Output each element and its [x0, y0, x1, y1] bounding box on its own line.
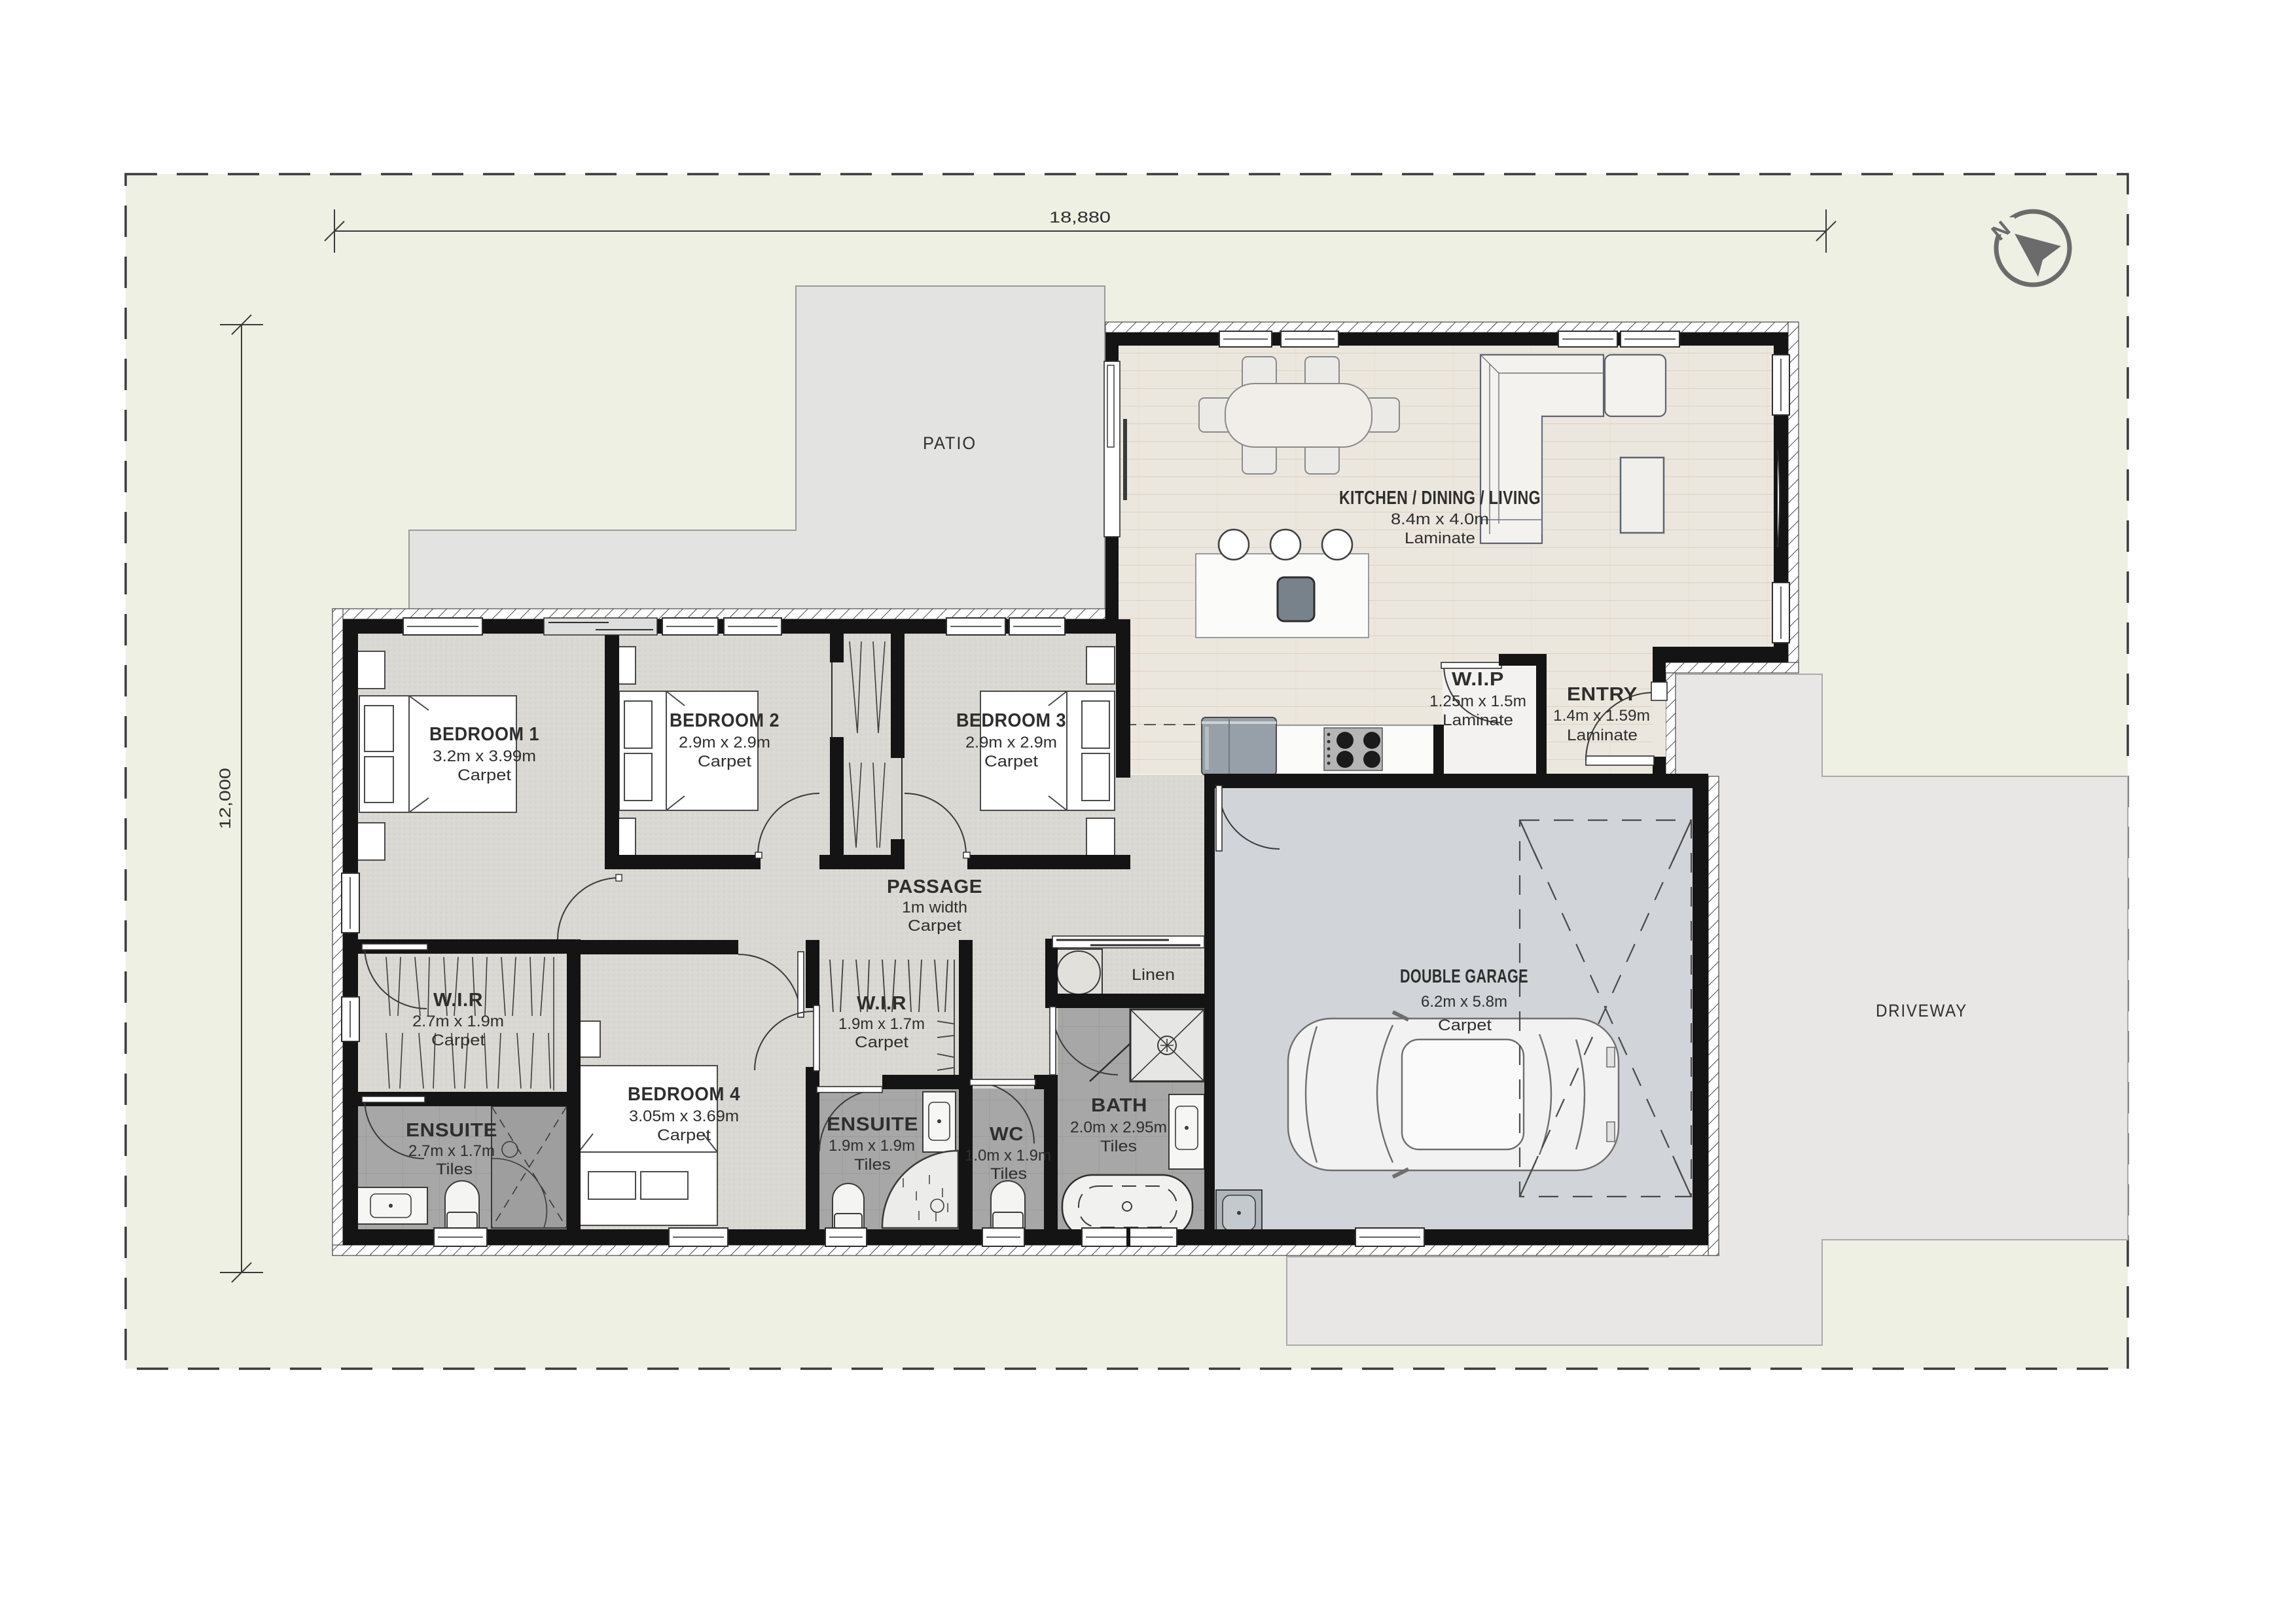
- svg-text:BEDROOM 4: BEDROOM 4: [628, 1084, 740, 1105]
- svg-text:Carpet: Carpet: [457, 767, 511, 784]
- svg-text:Laminate: Laminate: [1405, 530, 1475, 547]
- svg-text:18,880: 18,880: [1049, 209, 1111, 226]
- svg-text:Carpet: Carpet: [698, 753, 751, 770]
- svg-text:Tiles: Tiles: [854, 1156, 891, 1174]
- svg-text:1m width: 1m width: [902, 899, 967, 916]
- svg-text:Carpet: Carpet: [855, 1034, 908, 1051]
- svg-text:Tiles: Tiles: [1100, 1138, 1137, 1155]
- svg-text:WC: WC: [990, 1124, 1024, 1145]
- svg-text:DOUBLE GARAGE: DOUBLE GARAGE: [1400, 966, 1528, 987]
- svg-text:1.4m x 1.59m: 1.4m x 1.59m: [1553, 707, 1650, 725]
- svg-text:PATIO: PATIO: [923, 433, 977, 453]
- svg-text:8.4m x 4.0m: 8.4m x 4.0m: [1391, 511, 1489, 528]
- svg-text:Tiles: Tiles: [990, 1165, 1027, 1183]
- svg-text:Laminate: Laminate: [1567, 727, 1638, 744]
- svg-text:Carpet: Carpet: [1438, 1017, 1492, 1034]
- svg-text:1.9m x 1.7m: 1.9m x 1.7m: [838, 1015, 925, 1033]
- svg-text:Linen: Linen: [1132, 966, 1175, 984]
- svg-text:W.I.R: W.I.R: [857, 993, 906, 1014]
- svg-text:1.25m x 1.5m: 1.25m x 1.5m: [1429, 693, 1526, 710]
- svg-text:Carpet: Carpet: [431, 1032, 485, 1049]
- svg-text:2.0m x 2.95m: 2.0m x 2.95m: [1070, 1119, 1167, 1136]
- svg-text:DRIVEWAY: DRIVEWAY: [1876, 1001, 1967, 1020]
- svg-text:KITCHEN / DINING / LIVING: KITCHEN / DINING / LIVING: [1339, 488, 1541, 509]
- svg-text:Tiles: Tiles: [436, 1161, 473, 1178]
- svg-text:1.0m x 1.9m: 1.0m x 1.9m: [965, 1147, 1051, 1164]
- svg-text:PASSAGE: PASSAGE: [887, 876, 982, 897]
- svg-text:BEDROOM 2: BEDROOM 2: [670, 710, 780, 731]
- svg-text:2.9m x 2.9m: 2.9m x 2.9m: [965, 734, 1057, 751]
- svg-text:BATH: BATH: [1091, 1095, 1147, 1116]
- svg-text:Carpet: Carpet: [657, 1127, 711, 1144]
- svg-text:Laminate: Laminate: [1443, 712, 1513, 729]
- svg-text:3.05m x 3.69m: 3.05m x 3.69m: [629, 1108, 739, 1125]
- svg-text:2.7m x 1.7m: 2.7m x 1.7m: [408, 1142, 495, 1160]
- svg-text:1.9m x 1.9m: 1.9m x 1.9m: [829, 1137, 915, 1155]
- svg-text:ENTRY: ENTRY: [1567, 684, 1638, 705]
- svg-text:2.9m x 2.9m: 2.9m x 2.9m: [679, 734, 770, 751]
- svg-text:W.I.R: W.I.R: [433, 990, 483, 1011]
- svg-text:2.7m x 1.9m: 2.7m x 1.9m: [412, 1013, 504, 1030]
- svg-text:ENSUITE: ENSUITE: [406, 1120, 497, 1141]
- svg-text:6.2m x 5.8m: 6.2m x 5.8m: [1421, 993, 1507, 1011]
- svg-text:BEDROOM 1: BEDROOM 1: [429, 724, 539, 745]
- svg-text:BEDROOM 3: BEDROOM 3: [956, 710, 1066, 731]
- svg-text:Carpet: Carpet: [908, 917, 961, 935]
- svg-text:Carpet: Carpet: [984, 753, 1038, 770]
- svg-text:12,000: 12,000: [217, 768, 234, 829]
- svg-text:3.2m x 3.99m: 3.2m x 3.99m: [433, 748, 536, 765]
- svg-text:W.I.P: W.I.P: [1452, 669, 1504, 690]
- svg-text:ENSUITE: ENSUITE: [827, 1114, 918, 1135]
